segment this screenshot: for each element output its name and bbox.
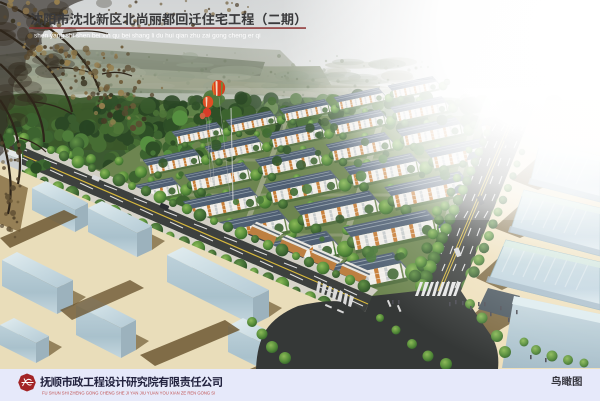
svg-text:FU SHUN SHI ZHENG GONG CHENG S: FU SHUN SHI ZHENG GONG CHENG SHE JI YAN … — [42, 391, 215, 396]
svg-text:shen yang shi shen bei xin qu: shen yang shi shen bei xin qu bei shang … — [34, 33, 261, 40]
